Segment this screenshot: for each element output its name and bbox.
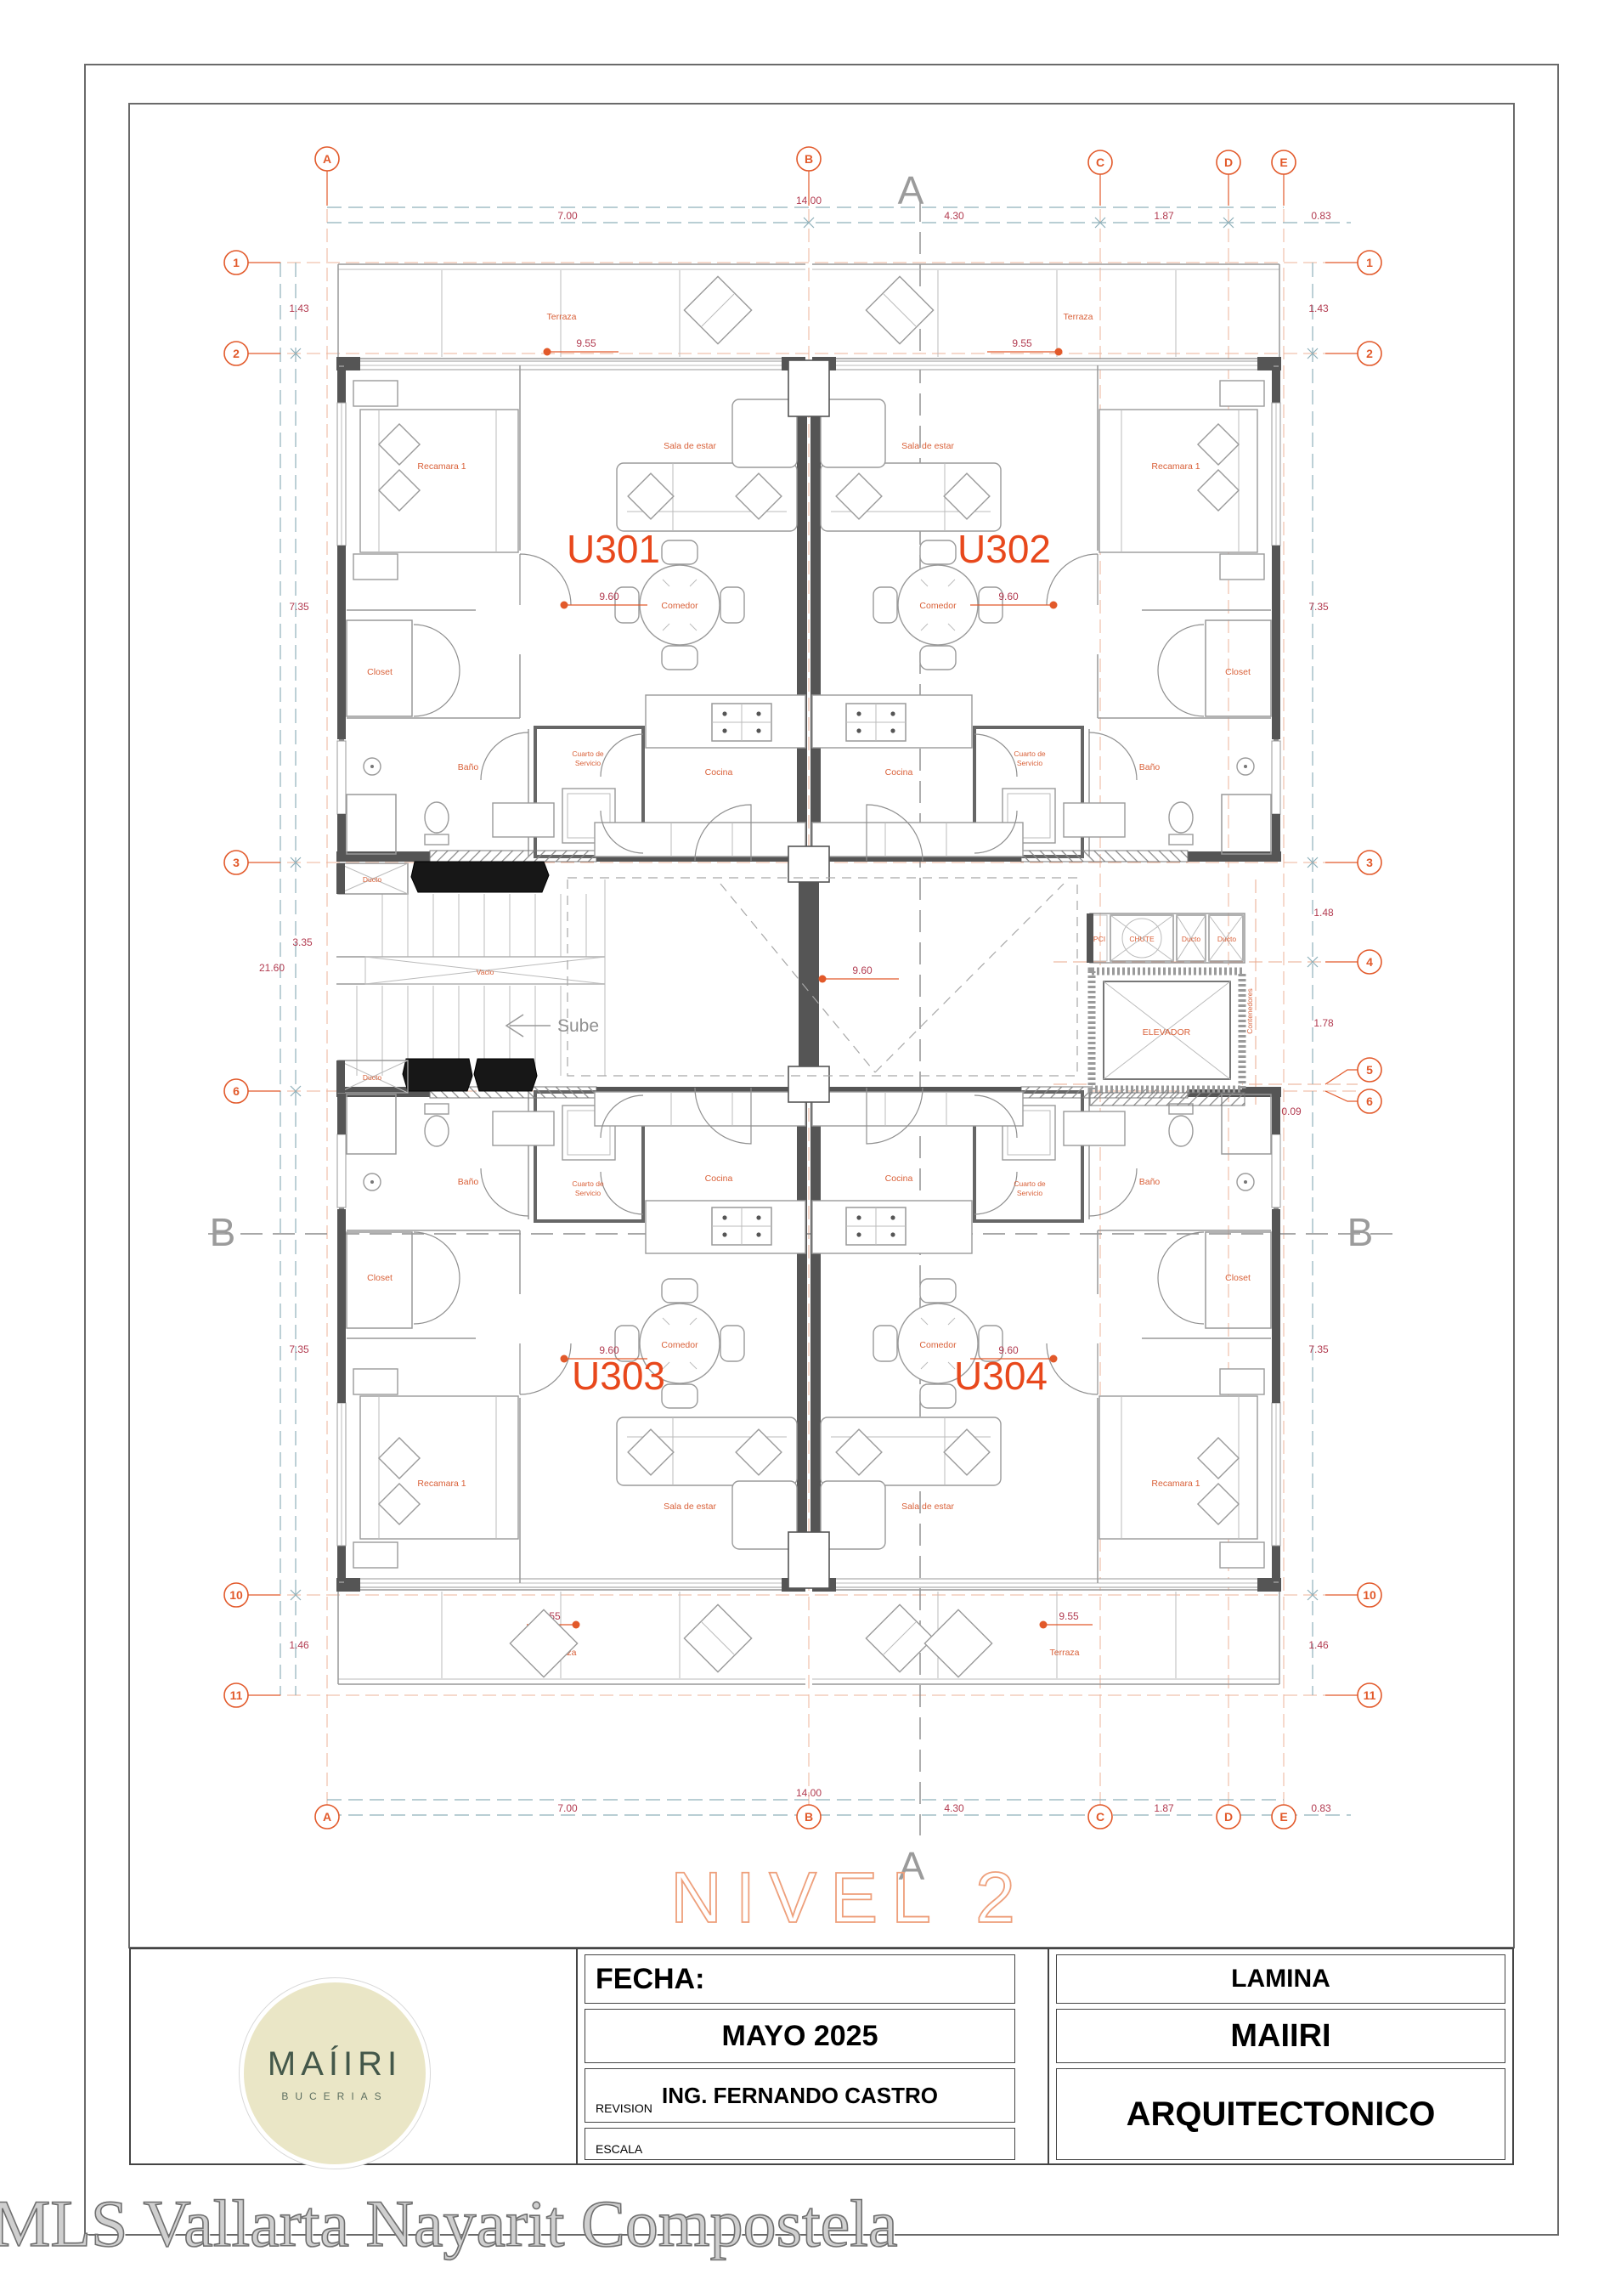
label-sala-u302: Sala de estar [901, 441, 954, 451]
label-sala-u301: Sala de estar [664, 441, 716, 451]
level-title: NIVEL 2 [670, 1858, 1029, 1937]
dim-right-23: 7.35 [1308, 601, 1329, 613]
grid-col-c-top: C [1096, 156, 1104, 169]
unit-id-u304: U304 [954, 1354, 1048, 1398]
grid-row-3-right: 3 [1366, 856, 1373, 869]
label-ducto-left-2: Ducto [363, 1073, 381, 1082]
dim-left-36: 3.35 [292, 936, 313, 948]
grid-row-2-right: 2 [1366, 347, 1373, 360]
dim-bottom-total: 14.00 [796, 1787, 822, 1799]
label-closet-u301: Closet [367, 667, 393, 677]
label-ducto-left-1: Ducto [363, 875, 381, 884]
label-vacio: Vacio [477, 968, 494, 976]
lamina-value-cell: MAIIRI [1056, 2009, 1505, 2063]
logo-subtitle: BUCERIAS [281, 2090, 387, 2102]
escala-cell: ESCALA [585, 2128, 1015, 2160]
dim-bottom-de: 0.83 [1311, 1802, 1331, 1814]
dim-right-610: 7.35 [1308, 1343, 1329, 1355]
grid-row-1-right: 1 [1366, 256, 1373, 269]
lamina-value: MAIIRI [1230, 2018, 1330, 2055]
dim-bottom-ab: 7.00 [557, 1802, 578, 1814]
label-ducto-right-1: Ducto [1182, 935, 1200, 943]
dim-right-12: 1.43 [1308, 303, 1329, 314]
dim-960-core: 9.60 [852, 964, 873, 976]
grid-row-10-left: 10 [229, 1588, 243, 1602]
revision-label: REVISION [596, 2101, 652, 2115]
section-mark-a-top: A [898, 168, 924, 212]
label-cuarto1-u304: Cuarto de [1014, 1179, 1046, 1188]
tipo-value: ARQUITECTONICO [1127, 2095, 1436, 2134]
grid-col-b-bottom: B [805, 1810, 813, 1824]
label-closet-u304: Closet [1225, 1273, 1251, 1283]
label-cocina-u304: Cocina [885, 1173, 913, 1184]
fecha-label-cell: FECHA: [585, 1954, 1015, 2004]
grid-row-4-right: 4 [1366, 955, 1373, 969]
label-sube: Sube [557, 1016, 599, 1036]
grid-row-2-left: 2 [233, 347, 240, 360]
label-comedor-u304: Comedor [919, 1340, 957, 1350]
dim-960-u301: 9.60 [599, 591, 619, 602]
dim-960-u304: 9.60 [998, 1344, 1019, 1356]
label-elevador: ELEVADOR [1143, 1027, 1191, 1038]
grid-row-10-right: 10 [1363, 1588, 1376, 1602]
label-comedor-u301: Comedor [661, 601, 698, 611]
grid-col-e-bottom: E [1279, 1810, 1287, 1824]
grid-col-a-top: A [323, 152, 331, 166]
grid-row-6-left: 6 [233, 1084, 240, 1098]
label-closet-u303: Closet [367, 1273, 393, 1283]
label-bano-u301: Baño [458, 762, 479, 772]
title-block-divider-1 [576, 1948, 578, 2165]
title-block-divider-2 [1048, 1948, 1049, 2165]
revision-value: ING. FERNANDO CASTRO [662, 2083, 938, 2109]
label-cuarto2-u304: Servicio [1017, 1189, 1043, 1197]
label-cuarto1-u301: Cuarto de [572, 749, 604, 758]
dim-left-12: 1.43 [289, 303, 309, 314]
label-recamara-u303: Recamara 1 [417, 1479, 466, 1489]
dim-left-total: 21.60 [259, 962, 285, 974]
grid-row-11-right: 11 [1364, 1688, 1376, 1702]
dim-left-1011: 1.46 [289, 1639, 309, 1651]
grid-col-a-bottom: A [323, 1810, 331, 1824]
lamina-label-cell: LAMINA [1056, 1954, 1505, 2004]
label-contenedores: Contenedores [1245, 988, 1254, 1033]
grid-row-11-left: 11 [230, 1688, 243, 1702]
label-sala-u304: Sala de estar [901, 1501, 954, 1512]
dim-left-610: 7.35 [289, 1343, 309, 1355]
label-chute: CHUTE [1129, 935, 1155, 943]
dim-960-u302: 9.60 [998, 591, 1019, 602]
dim-955-br: 9.55 [1059, 1610, 1079, 1622]
label-cuarto2-u303: Servicio [575, 1189, 602, 1197]
label-cocina-u302: Cocina [885, 767, 913, 778]
lamina-label: LAMINA [1231, 1965, 1330, 1993]
label-comedor-u303: Comedor [661, 1340, 698, 1350]
label-cuarto2-u301: Servicio [575, 759, 602, 767]
label-terraza-br: Terraza [1049, 1648, 1079, 1658]
dim-right-34: 1.48 [1313, 907, 1334, 919]
dim-top-ab: 7.00 [557, 210, 578, 222]
logo-name: MAÍIRI [268, 2045, 402, 2084]
grid-col-d-bottom: D [1224, 1810, 1233, 1824]
label-recamara-u304: Recamara 1 [1151, 1479, 1200, 1489]
dim-top-de: 0.83 [1311, 210, 1331, 222]
fecha-value-cell: MAYO 2025 [585, 2009, 1015, 2063]
label-comedor-u302: Comedor [919, 601, 957, 611]
dim-top-bc: 4.30 [944, 210, 964, 222]
grid-col-b-top: B [805, 152, 813, 166]
label-recamara-u302: Recamara 1 [1151, 461, 1200, 472]
label-terraza-tl: Terraza [546, 312, 576, 322]
label-bano-u304: Baño [1139, 1177, 1161, 1187]
label-pci: PCI [1093, 935, 1105, 943]
label-sala-u303: Sala de estar [664, 1501, 716, 1512]
label-bano-u303: Baño [458, 1177, 479, 1187]
unit-id-u302: U302 [957, 527, 1051, 571]
logo: MAÍIRI BUCERIAS [244, 1982, 426, 2164]
label-bano-u302: Baño [1139, 762, 1161, 772]
grid-col-e-top: E [1279, 156, 1287, 169]
label-terraza-tr: Terraza [1063, 312, 1093, 322]
label-cocina-u301: Cocina [705, 767, 733, 778]
dim-955-tr: 9.55 [1012, 337, 1032, 349]
label-cuarto2-u302: Servicio [1017, 759, 1043, 767]
grid-row-3-left: 3 [233, 856, 240, 869]
grid-row-1-left: 1 [233, 256, 240, 269]
drawing-sheet: 14.00 7.00 4.30 1.87 0.83 14.00 7.00 4.3… [0, 0, 1621, 2296]
dim-top-cd: 1.87 [1154, 210, 1174, 222]
label-recamara-u301: Recamara 1 [417, 461, 466, 472]
grid-row-6-right: 6 [1366, 1094, 1373, 1108]
dim-right-1011: 1.46 [1308, 1639, 1329, 1651]
dim-bottom-cd: 1.87 [1154, 1802, 1174, 1814]
grid-col-d-top: D [1224, 156, 1233, 169]
dim-right-56: 0.09 [1281, 1106, 1302, 1117]
dim-bottom-bc: 4.30 [944, 1802, 964, 1814]
dim-left-23: 7.35 [289, 601, 309, 613]
revision-cell: REVISION ING. FERNANDO CASTRO [585, 2068, 1015, 2123]
unit-id-u303: U303 [572, 1354, 665, 1398]
dim-955-tl: 9.55 [576, 337, 596, 349]
dim-960-u303: 9.60 [599, 1344, 619, 1356]
grid-row-5-right: 5 [1366, 1063, 1373, 1077]
unit-id-u301: U301 [567, 527, 660, 571]
section-mark-b-left: B [210, 1210, 236, 1254]
label-cuarto1-u303: Cuarto de [572, 1179, 604, 1188]
watermark: MLS Vallarta Nayarit Compostela [0, 2186, 1181, 2262]
dim-right-45: 1.78 [1313, 1017, 1334, 1029]
escala-label: ESCALA [596, 2142, 642, 2156]
label-cocina-u303: Cocina [705, 1173, 733, 1184]
tipo-cell: ARQUITECTONICO [1056, 2068, 1505, 2160]
label-cuarto1-u302: Cuarto de [1014, 749, 1046, 758]
fecha-value: MAYO 2025 [722, 2020, 878, 2053]
section-mark-b-right: B [1347, 1210, 1374, 1254]
grid-col-c-bottom: C [1096, 1810, 1104, 1824]
fecha-label: FECHA: [596, 1963, 704, 1996]
label-closet-u302: Closet [1225, 667, 1251, 677]
label-ducto-right-2: Ducto [1217, 935, 1236, 943]
